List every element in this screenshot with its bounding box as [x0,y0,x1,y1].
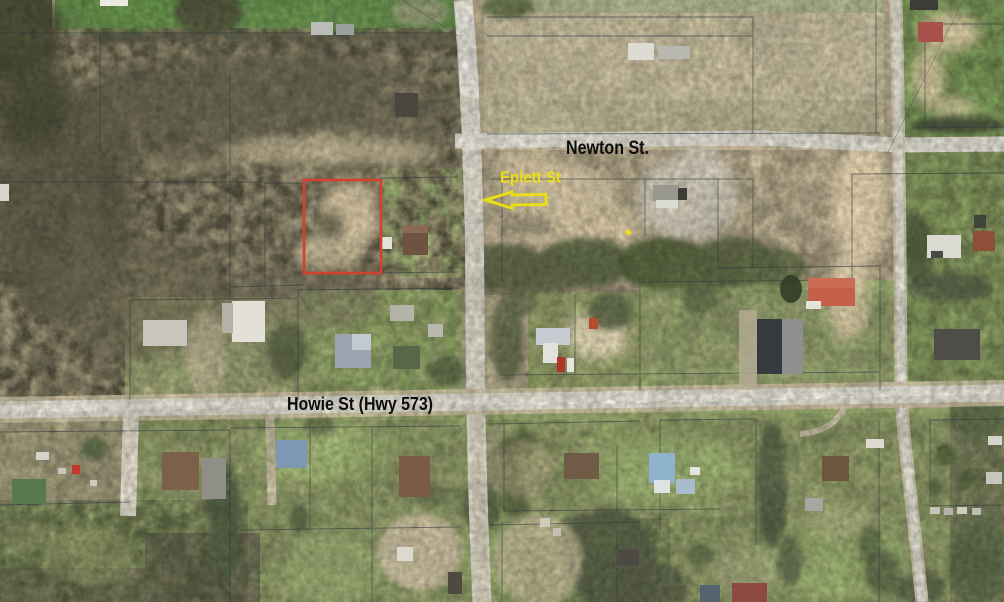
svg-text:Eplett St: Eplett St [500,170,561,187]
svg-text:Howie St (Hwy 573): Howie St (Hwy 573) [287,393,433,414]
svg-text:Newton St.: Newton St. [566,138,649,159]
